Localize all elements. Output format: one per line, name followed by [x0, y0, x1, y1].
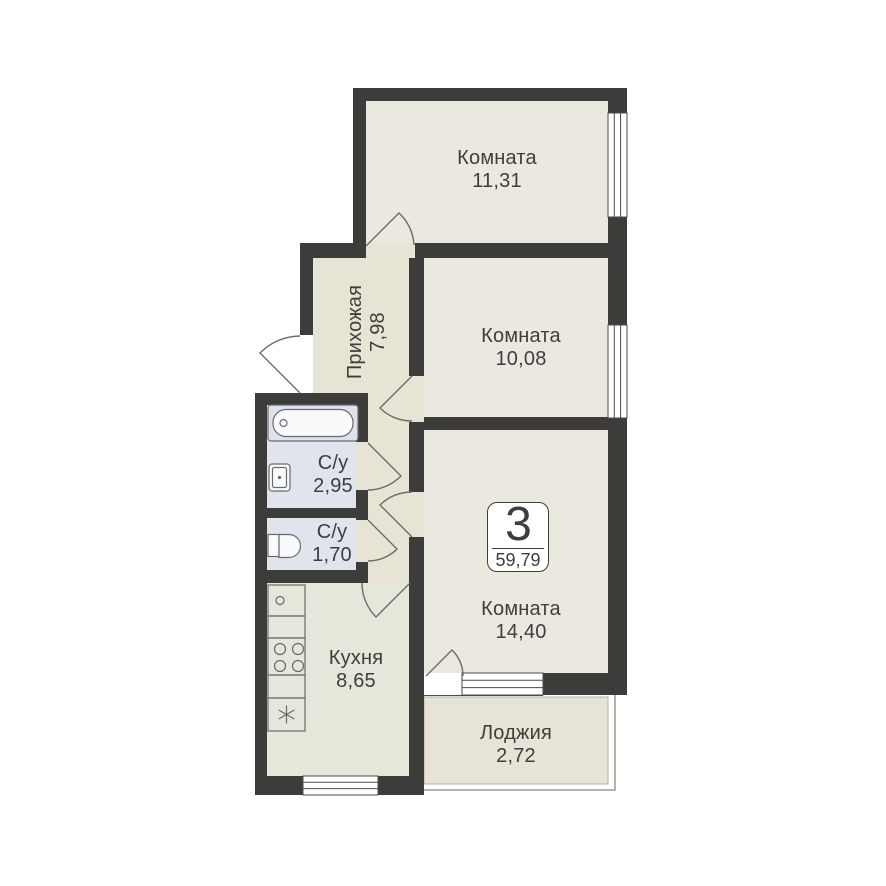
rooms-count: 3 — [505, 505, 531, 545]
floorplan-canvas: Комната 11,31 Прихожая 7,98 Комната 10,0… — [0, 0, 886, 886]
room-area: 10,08 — [481, 348, 561, 371]
entrance-opening — [300, 335, 313, 393]
window-symbol-room-2 — [608, 325, 627, 418]
room-area: 1,70 — [312, 544, 352, 567]
bathtub-icon — [268, 405, 358, 441]
room-area: 8,65 — [329, 670, 384, 693]
room-area: 7,98 — [367, 285, 390, 379]
room-area: 2,95 — [313, 475, 353, 498]
label-bathroom: С/у 2,95 — [313, 452, 353, 498]
room-name: Комната — [457, 147, 537, 170]
room-name: Комната — [481, 598, 561, 621]
room-name: Прихожая — [344, 285, 367, 379]
label-room-2: Комната 10,08 — [481, 325, 561, 371]
balcony-block — [424, 673, 543, 696]
window-symbol-room-1 — [608, 113, 627, 217]
room-name: Кухня — [329, 647, 384, 670]
room-name: С/у — [313, 452, 353, 475]
room-name: Комната — [481, 325, 561, 348]
badge-divider — [492, 548, 544, 549]
label-wc: С/у 1,70 — [312, 521, 352, 567]
room-area: 11,31 — [457, 170, 537, 193]
room-name: С/у — [312, 521, 352, 544]
toilet-icon — [268, 535, 301, 558]
label-room-3: Комната 14,40 — [481, 598, 561, 644]
label-hallway: Прихожая 7,98 — [344, 285, 390, 379]
balcony-door-opening — [424, 673, 462, 695]
label-kitchen: Кухня 8,65 — [329, 647, 384, 693]
room-area: 14,40 — [481, 621, 561, 644]
floor-plan-svg — [0, 0, 886, 886]
label-room-1: Комната 11,31 — [457, 147, 537, 193]
window-symbol-kitchen — [303, 776, 378, 795]
label-loggia: Лоджия 2,72 — [480, 722, 552, 768]
door-swing-entrance — [260, 336, 300, 393]
total-area: 59,79 — [495, 551, 540, 569]
apartment-badge: 3 59,79 — [487, 502, 549, 572]
room-name: Лоджия — [480, 722, 552, 745]
bath-sink-icon — [269, 464, 290, 491]
window-symbol-balcony — [462, 673, 543, 695]
room-area: 2,72 — [480, 745, 552, 768]
